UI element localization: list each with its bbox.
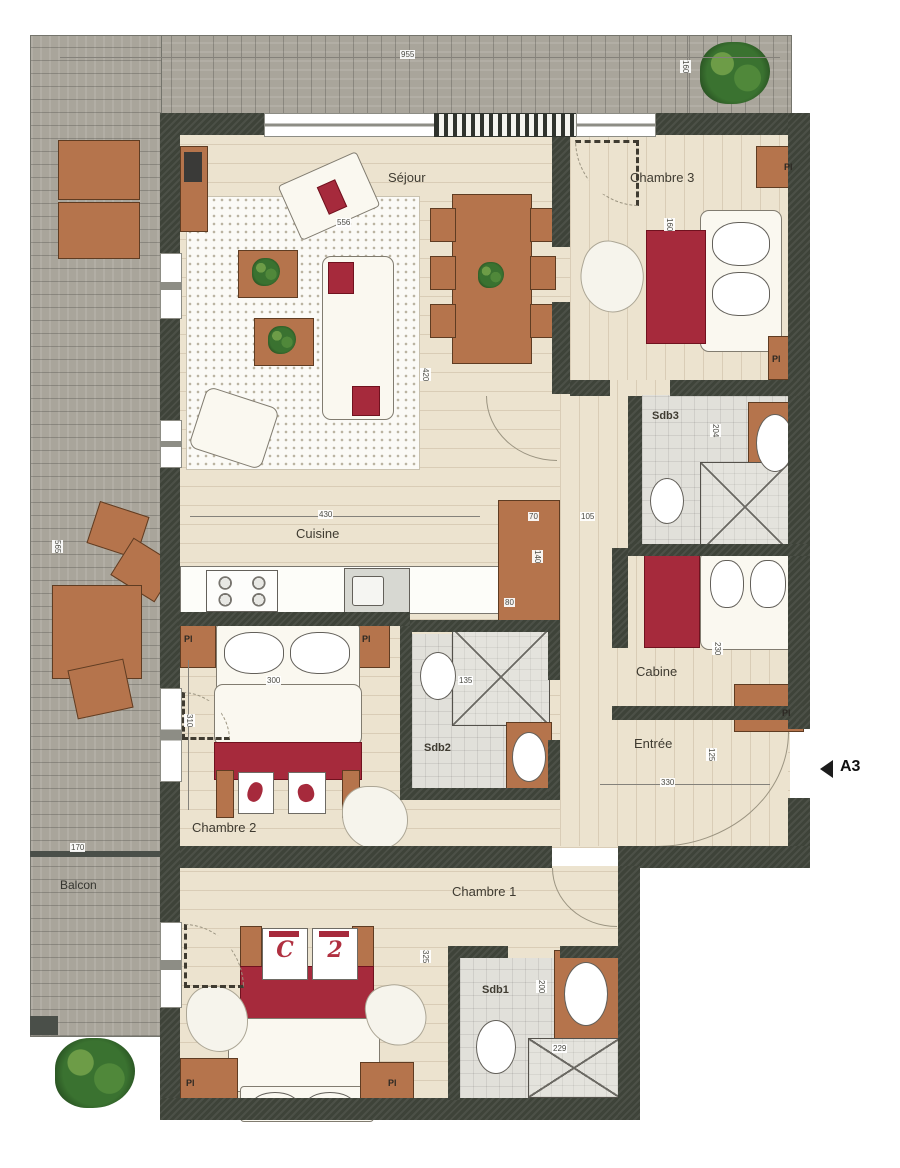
partition: [400, 620, 560, 632]
closet-chest: [180, 620, 216, 668]
closet-label: Pl: [784, 162, 793, 172]
room-label-chambre2: Chambre 2: [192, 820, 256, 835]
dimension: 105: [580, 512, 595, 521]
pillow: [750, 560, 786, 608]
dining-chair: [530, 256, 556, 290]
bed-blanket: [646, 230, 706, 344]
dimension: 170: [70, 843, 85, 852]
dim-line: [60, 57, 780, 58]
toilet: [650, 478, 684, 524]
shower: [700, 462, 790, 552]
dimension: 565: [52, 540, 63, 553]
partition: [400, 788, 560, 800]
partition: [670, 380, 810, 396]
plant-icon: [55, 1038, 135, 1108]
dimension: 300: [266, 676, 281, 685]
window: [264, 113, 436, 137]
balcony-lounger: [58, 202, 140, 259]
sofa-cushion: [328, 262, 354, 294]
bed-post: [216, 770, 234, 818]
room-label-sejour: Séjour: [388, 170, 426, 185]
dimension: 125: [706, 748, 717, 761]
dimension: 160: [664, 218, 675, 231]
closet-label: Pl: [782, 708, 791, 718]
room-label-chambre3: Chambre 3: [630, 170, 694, 185]
dimension: 420: [420, 368, 431, 381]
dimension: 204: [710, 424, 721, 437]
dimension: 310: [184, 714, 195, 727]
dim-line: [687, 36, 688, 113]
wall: [160, 1098, 640, 1120]
bed-duvet: [228, 1018, 380, 1092]
dim-line: [188, 660, 189, 810]
window: [160, 688, 182, 782]
a3-direction-arrow-icon: [820, 760, 833, 778]
balcony-lounger: [58, 140, 140, 200]
stove: [206, 570, 278, 612]
wall: [618, 866, 640, 1120]
dimension: 80: [504, 598, 515, 607]
room-label-cabine: Cabine: [636, 664, 677, 679]
dimension: 556: [336, 218, 351, 227]
window: [160, 253, 182, 319]
kitchen-sink-basin: [352, 576, 384, 606]
tv-box: [184, 152, 202, 182]
dimension: 230: [712, 642, 723, 655]
toilet: [476, 1020, 516, 1074]
partition: [548, 740, 560, 800]
dining-chair: [430, 256, 456, 290]
pillow: [224, 632, 284, 674]
room-label-chambre1: Chambre 1: [452, 884, 516, 899]
pillow-letter: 2: [313, 937, 357, 963]
pillow-letter-c: C: [262, 928, 308, 980]
partition: [560, 946, 622, 958]
window-louvered: [434, 113, 578, 137]
partition: [612, 548, 628, 648]
bed-blanket: [644, 554, 700, 648]
pillow: [712, 222, 770, 266]
partition: [552, 135, 570, 247]
bed-duvet: [214, 684, 362, 746]
dimension: 325: [420, 950, 431, 963]
sink: [564, 962, 608, 1026]
pillow: [710, 560, 744, 608]
partition: [178, 612, 410, 626]
partition: [400, 620, 412, 800]
wall: [788, 798, 810, 848]
pillow: [712, 272, 770, 316]
closet-label: Pl: [772, 354, 781, 364]
room-label-sdb3: Sdb3: [652, 410, 679, 422]
dim-line: [190, 516, 480, 517]
wall: [788, 113, 810, 729]
balcony-corner-post: [30, 1016, 58, 1035]
partition: [552, 302, 570, 394]
closet-label: Pl: [184, 634, 193, 644]
closet-label: Pl: [362, 634, 371, 644]
dimension: 135: [458, 676, 473, 685]
dimension: 200: [536, 980, 547, 993]
room-label-entree: Entrée: [634, 736, 672, 751]
window: [576, 113, 656, 137]
closet-label: Pl: [186, 1078, 195, 1088]
dimension: 140: [532, 550, 543, 563]
partition: [612, 706, 810, 720]
bed-post: [240, 926, 262, 970]
unit-marker: A3: [840, 758, 860, 776]
pillow-letter: C: [263, 937, 307, 963]
partition: [628, 396, 642, 548]
dimension: 229: [552, 1044, 567, 1053]
dimension: 955: [400, 50, 415, 59]
window: [160, 922, 182, 1008]
room-label-cuisine: Cuisine: [296, 526, 339, 541]
balcony-divider: [30, 851, 160, 857]
pillow-letter-2: 2: [312, 928, 358, 980]
room-label-sdb1: Sdb1: [482, 984, 509, 996]
partition: [448, 946, 460, 1100]
dim-line: [600, 784, 770, 785]
sofa-cushion: [352, 386, 380, 416]
room-label-sdb2: Sdb2: [424, 742, 451, 754]
room-label-balcon: Balcon: [60, 878, 97, 892]
dimension: 70: [528, 512, 539, 521]
dimension: 330: [660, 778, 675, 787]
dining-chair: [430, 208, 456, 242]
wall: [618, 846, 810, 868]
partition: [570, 380, 610, 396]
dimension: 430: [318, 510, 333, 519]
closet-label: Pl: [388, 1078, 397, 1088]
window: [160, 420, 182, 468]
sink: [512, 732, 546, 782]
closet-chest: [360, 1062, 414, 1100]
floor-plan: C 2: [0, 0, 900, 1168]
toilet: [420, 652, 456, 700]
pillow: [290, 632, 350, 674]
partition: [628, 544, 810, 556]
dining-chair: [430, 304, 456, 338]
partition: [548, 620, 560, 680]
shower: [528, 1038, 620, 1098]
wall: [178, 846, 552, 868]
dimension: 160: [680, 60, 691, 73]
